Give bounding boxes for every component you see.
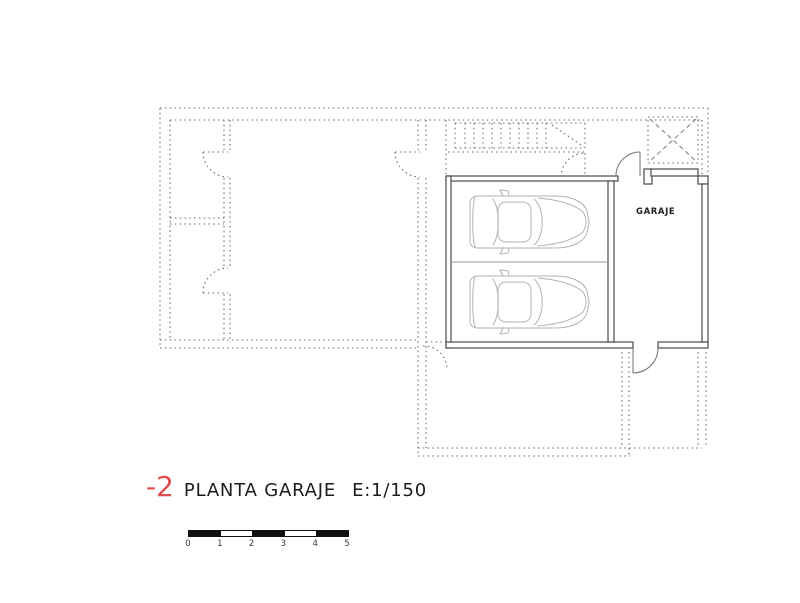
stair-direction-line (552, 125, 584, 147)
scale-tick: 5 (344, 539, 349, 549)
elevator-x-mark (650, 119, 696, 161)
scale-tick: 1 (217, 539, 222, 549)
room-label-garaje: GARAJE (636, 207, 675, 217)
floor-number-label: -2 (146, 472, 174, 502)
graphic-scale-bar (188, 530, 349, 537)
scale-tick: 4 (312, 539, 317, 549)
scale-bar-ticks: 0 1 2 3 4 5 (188, 539, 347, 551)
staircase (448, 123, 585, 152)
car-top-view-1 (470, 190, 589, 254)
elevator-shaft (648, 117, 698, 163)
scale-segment (317, 531, 348, 536)
drawing-title: PLANTA GARAJE (184, 480, 336, 501)
projection-outer-boundary (160, 108, 708, 348)
floor-plan-drawing (0, 0, 800, 603)
projection-door-arcs (203, 152, 585, 369)
garage-top-door (616, 152, 640, 176)
drawing-sheet: GARAJE -2 PLANTA GARAJE E:1/150 0 1 2 3 … (0, 0, 800, 603)
garage-bottom-door (633, 348, 658, 373)
car-top-view-2 (470, 270, 589, 334)
scale-segment (220, 531, 253, 536)
stair-treads (465, 123, 546, 148)
scale-tick: 3 (281, 539, 286, 549)
scale-segment (189, 531, 220, 536)
drawing-scale: E:1/150 (352, 480, 427, 501)
scale-segment (284, 531, 317, 536)
drawing-caption: -2 PLANTA GARAJE E:1/150 (146, 472, 427, 502)
projection-lower-area (418, 352, 706, 456)
scale-tick: 0 (185, 539, 190, 549)
scale-tick: 2 (249, 539, 254, 549)
scale-segment (253, 531, 284, 536)
